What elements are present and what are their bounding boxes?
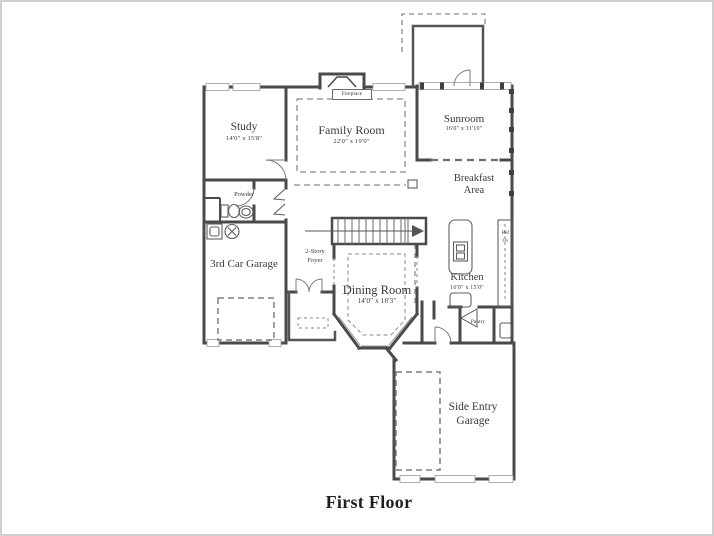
floorplan-drawing	[2, 2, 714, 536]
side-garage-line2: Garage	[422, 414, 524, 428]
kitchen-name: Kitchen	[431, 272, 503, 284]
floorplan-page: Study 14'0" x 15'8" Family Room 22'0" x …	[0, 0, 714, 536]
appliance-labels: Ref Ov	[498, 230, 513, 245]
study-name: Study	[199, 121, 289, 134]
study-label: Study 14'0" x 15'8"	[199, 121, 289, 142]
oven-label: Ov	[498, 238, 513, 246]
pantry-label: Pantry	[463, 319, 493, 325]
breakfast-line2: Area	[432, 185, 516, 197]
breakfast-line1: Breakfast	[432, 173, 516, 185]
sunroom-dims: 16'0" x 11'10"	[418, 126, 510, 133]
kitchen-island	[449, 220, 472, 307]
side-garage-line1: Side Entry	[422, 400, 524, 414]
sink-fixture	[239, 206, 253, 218]
study-dims: 14'0" x 15'8"	[199, 135, 289, 142]
foyer-line2: Foyer	[296, 257, 334, 266]
family-room-dims: 22'0" x 19'0"	[294, 138, 409, 145]
kitchen-label: Kitchen 16'0" x 15'0"	[431, 272, 503, 291]
foyer-line1: 2-Story	[296, 248, 334, 257]
foyer-label: 2-Story Foyer	[296, 248, 334, 265]
family-room-label: Family Room 22'0" x 19'0"	[294, 124, 409, 146]
fireplace-shape	[328, 77, 356, 87]
side-entry-garage-label: Side Entry Garage	[422, 400, 524, 428]
sunroom-label: Sunroom 16'0" x 11'10"	[418, 113, 510, 133]
utility-fixtures	[207, 224, 239, 239]
sunroom-name: Sunroom	[418, 113, 510, 125]
dining-room-label: Dining Room 14'0" x 18'3"	[331, 283, 423, 306]
fireplace-label: Fireplace	[332, 89, 372, 100]
third-car-garage-label: 3rd Car Garage	[198, 258, 290, 270]
ref-label: Ref	[498, 230, 513, 238]
staircase	[305, 218, 426, 244]
dining-room-dims: 14'0" x 18'3"	[331, 298, 423, 306]
dining-room-name: Dining Room	[331, 283, 423, 297]
plan-title: First Floor	[259, 492, 479, 512]
family-room-name: Family Room	[294, 124, 409, 137]
kitchen-dims: 16'0" x 15'0"	[431, 285, 503, 292]
powder-label: Powder	[228, 191, 260, 198]
breakfast-area-label: Breakfast Area	[432, 173, 516, 196]
